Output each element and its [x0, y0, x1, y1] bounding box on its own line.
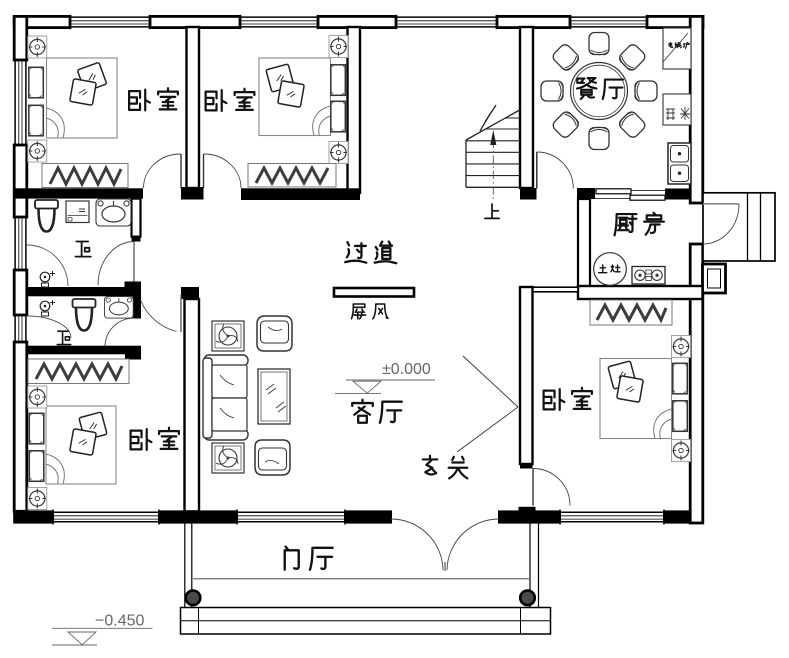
svg-text:±0.000: ±0.000: [382, 361, 431, 378]
svg-text:−0.450: −0.450: [95, 613, 144, 630]
